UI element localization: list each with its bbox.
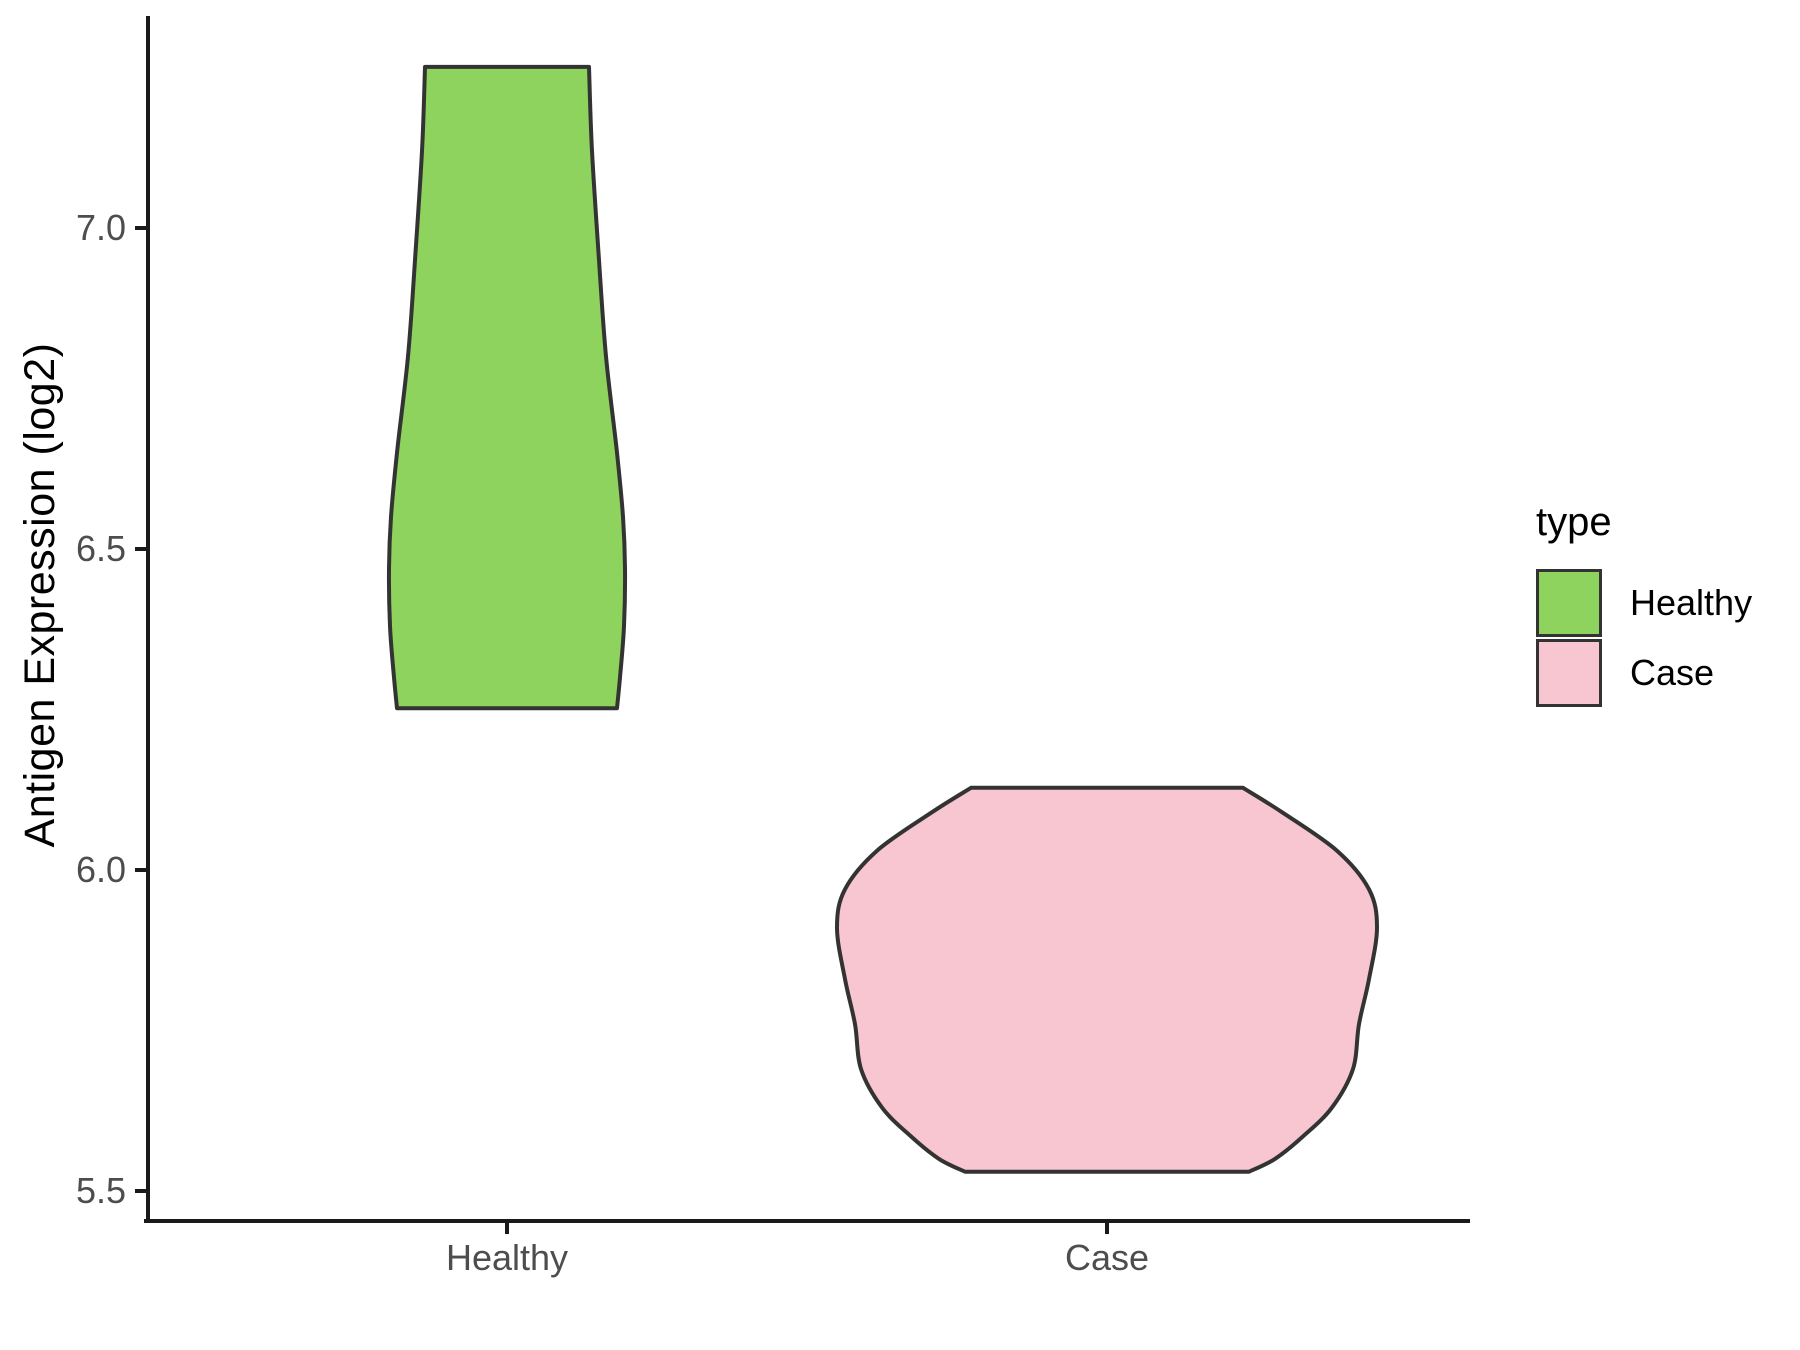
y-tick-label: 6.0	[16, 848, 126, 892]
legend-label: Healthy	[1630, 582, 1752, 624]
legend: type HealthyCase	[1536, 500, 1752, 709]
legend-swatch	[1536, 639, 1602, 707]
y-tick-label: 7.0	[16, 206, 126, 250]
legend-label: Case	[1630, 652, 1714, 694]
plot-area	[0, 0, 1800, 1350]
violin-case	[837, 788, 1377, 1172]
x-tick-label: Case	[1065, 1236, 1149, 1280]
legend-item: Healthy	[1536, 569, 1752, 637]
y-tick-label: 6.5	[16, 527, 126, 571]
legend-item: Case	[1536, 639, 1752, 707]
legend-title: type	[1536, 500, 1752, 545]
x-tick-label: Healthy	[446, 1236, 568, 1280]
y-axis-title: Antigen Expression (log2)	[16, 343, 65, 848]
violin-chart: Antigen Expression (log2) 7.06.56.05.5 H…	[0, 0, 1800, 1350]
legend-swatch	[1536, 569, 1602, 637]
violin-healthy	[389, 67, 625, 708]
y-tick-label: 5.5	[16, 1169, 126, 1213]
legend-items: HealthyCase	[1536, 569, 1752, 707]
